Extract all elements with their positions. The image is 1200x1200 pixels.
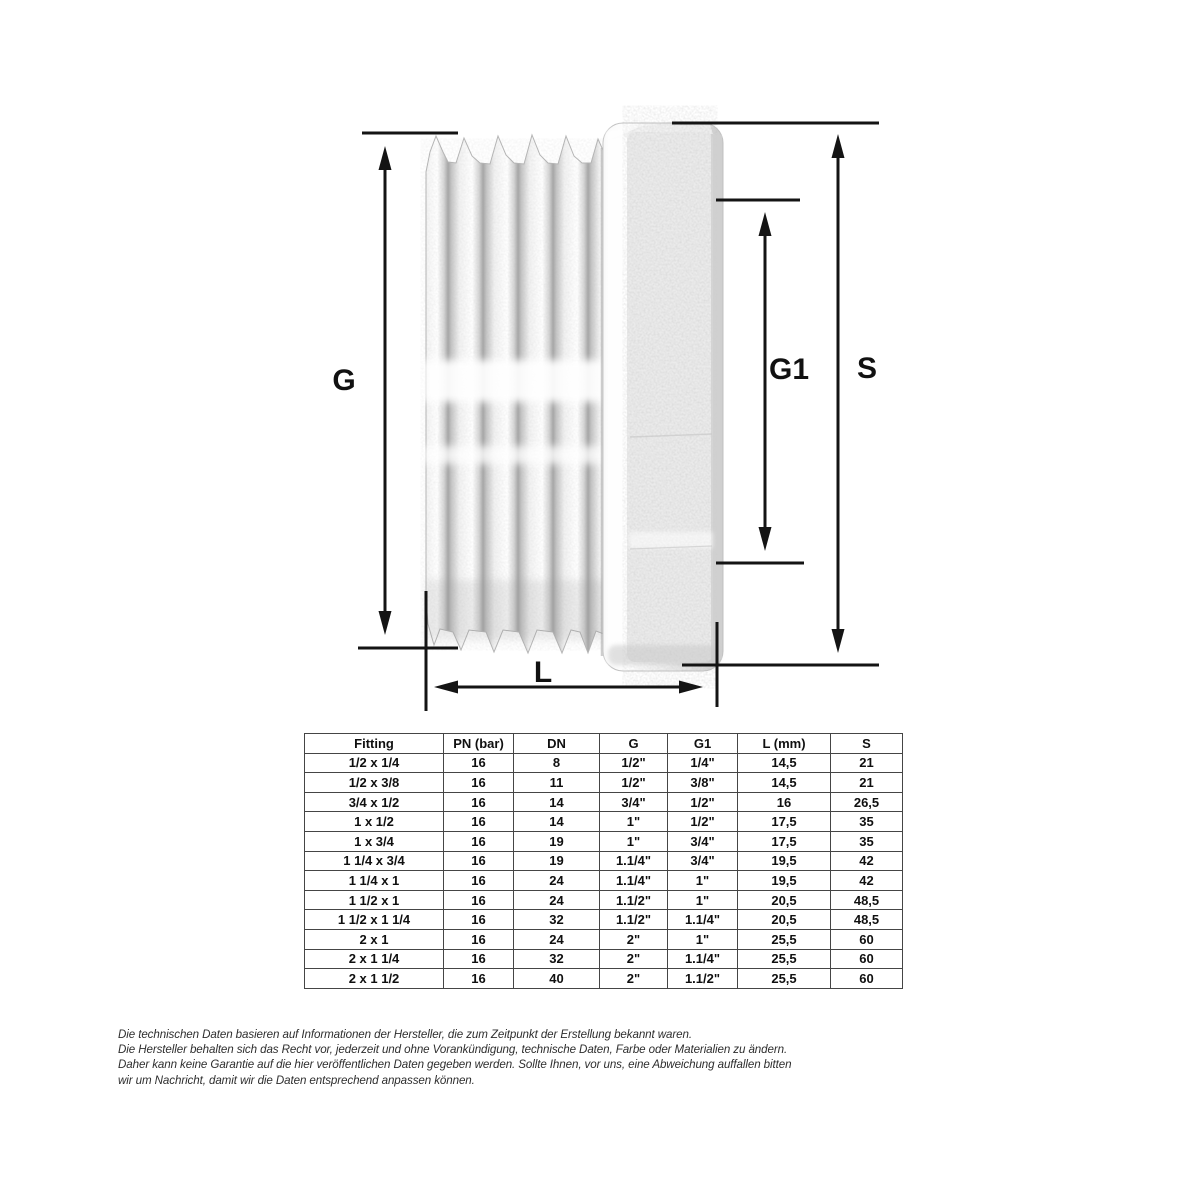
table-cell: 16 — [444, 871, 514, 891]
dimension-label-l: L — [534, 656, 552, 689]
table-cell: 1/2" — [600, 753, 668, 773]
table-cell: 2" — [600, 949, 668, 969]
table-cell: 16 — [444, 949, 514, 969]
table-cell: 16 — [444, 910, 514, 930]
dimension-label-s: S — [857, 352, 877, 385]
table-cell: 16 — [444, 753, 514, 773]
disclaimer: Die technischen Daten basieren auf Infor… — [118, 1027, 791, 1088]
table-header-cell: Fitting — [305, 734, 444, 754]
table-cell: 17,5 — [738, 831, 831, 851]
table-row: 3/4 x 1/216143/4"1/2"1626,5 — [305, 792, 903, 812]
table-cell: 1" — [668, 871, 738, 891]
table-cell: 1" — [668, 890, 738, 910]
table-cell: 1/2" — [668, 792, 738, 812]
table-cell: 1 1/4 x 1 — [305, 871, 444, 891]
table-cell: 60 — [831, 949, 903, 969]
table-cell: 16 — [444, 812, 514, 832]
disclaimer-line: Die technischen Daten basieren auf Infor… — [118, 1027, 791, 1042]
table-row: 1/2 x 3/816111/2"3/8"14,521 — [305, 773, 903, 793]
table-cell: 1 1/4 x 3/4 — [305, 851, 444, 871]
table-cell: 3/4" — [600, 792, 668, 812]
table-cell: 21 — [831, 773, 903, 793]
table-cell: 42 — [831, 851, 903, 871]
table-cell: 14 — [514, 812, 600, 832]
table-cell: 40 — [514, 969, 600, 989]
table-cell: 16 — [444, 890, 514, 910]
table-cell: 1/2" — [600, 773, 668, 793]
table-cell: 1/2 x 1/4 — [305, 753, 444, 773]
table-cell: 8 — [514, 753, 600, 773]
table-header-cell: S — [831, 734, 903, 754]
table-cell: 3/4 x 1/2 — [305, 792, 444, 812]
dimension-label-g: G — [332, 364, 355, 397]
table-cell: 24 — [514, 890, 600, 910]
table-cell: 11 — [514, 773, 600, 793]
table-cell: 16 — [444, 969, 514, 989]
table-cell: 1.1/4" — [600, 851, 668, 871]
table-cell: 1" — [668, 929, 738, 949]
table-row: 1 1/2 x 1 1/416321.1/2"1.1/4"20,548,5 — [305, 910, 903, 930]
table-cell: 2 x 1 1/2 — [305, 969, 444, 989]
table-cell: 3/8" — [668, 773, 738, 793]
table-cell: 32 — [514, 910, 600, 930]
table-cell: 20,5 — [738, 910, 831, 930]
table-cell: 1" — [600, 831, 668, 851]
table-cell: 14,5 — [738, 773, 831, 793]
table-cell: 1 x 3/4 — [305, 831, 444, 851]
disclaimer-line: Die Hersteller behalten sich das Recht v… — [118, 1042, 791, 1057]
disclaimer-line: wir um Nachricht, damit wir die Daten en… — [118, 1073, 791, 1088]
table-cell: 1 1/2 x 1 1/4 — [305, 910, 444, 930]
datasheet-page: G G1 S L — [0, 0, 1200, 1200]
table-cell: 42 — [831, 871, 903, 891]
table-header-cell: L (mm) — [738, 734, 831, 754]
table-cell: 17,5 — [738, 812, 831, 832]
table-cell: 48,5 — [831, 910, 903, 930]
table-cell: 32 — [514, 949, 600, 969]
table-header-cell: G — [600, 734, 668, 754]
table-cell: 1" — [600, 812, 668, 832]
table-cell: 14,5 — [738, 753, 831, 773]
table-cell: 1 x 1/2 — [305, 812, 444, 832]
table-header-row: Fitting PN (bar) DN G G1 L (mm) S — [305, 734, 903, 754]
table-cell: 1 1/2 x 1 — [305, 890, 444, 910]
table-cell: 2" — [600, 929, 668, 949]
table-cell: 1.1/2" — [600, 910, 668, 930]
table-cell: 19 — [514, 851, 600, 871]
table-cell: 25,5 — [738, 929, 831, 949]
table-header-cell: G1 — [668, 734, 738, 754]
table-cell: 35 — [831, 812, 903, 832]
table-cell: 2" — [600, 969, 668, 989]
table-cell: 1.1/4" — [668, 949, 738, 969]
table-cell: 2 x 1 — [305, 929, 444, 949]
table-row: 1 x 1/216141"1/2"17,535 — [305, 812, 903, 832]
table-cell: 21 — [831, 753, 903, 773]
table-cell: 16 — [444, 851, 514, 871]
table-cell: 24 — [514, 929, 600, 949]
table-row: 2 x 116242"1"25,560 — [305, 929, 903, 949]
table-row: 1 1/2 x 116241.1/2"1"20,548,5 — [305, 890, 903, 910]
hex-head — [602, 123, 723, 671]
table-cell: 1/4" — [668, 753, 738, 773]
disclaimer-line: Daher kann keine Garantie auf die hier v… — [118, 1057, 791, 1072]
table-cell: 16 — [444, 831, 514, 851]
technical-drawing: G G1 S L — [0, 0, 1200, 730]
table-cell: 1/2 x 3/8 — [305, 773, 444, 793]
table-cell: 24 — [514, 871, 600, 891]
table-cell: 19,5 — [738, 851, 831, 871]
table-header-cell: PN (bar) — [444, 734, 514, 754]
table-cell: 35 — [831, 831, 903, 851]
table-cell: 1.1/2" — [600, 890, 668, 910]
table-header-cell: DN — [514, 734, 600, 754]
table-cell: 16 — [444, 792, 514, 812]
table-row: 2 x 1 1/416322"1.1/4"25,560 — [305, 949, 903, 969]
table-cell: 1/2" — [668, 812, 738, 832]
table-cell: 19,5 — [738, 871, 831, 891]
table-cell: 25,5 — [738, 969, 831, 989]
table-row: 1 1/4 x 3/416191.1/4"3/4"19,542 — [305, 851, 903, 871]
table-cell: 16 — [444, 929, 514, 949]
table-cell: 16 — [738, 792, 831, 812]
table-row: 2 x 1 1/216402"1.1/2"25,560 — [305, 969, 903, 989]
table-cell: 25,5 — [738, 949, 831, 969]
table-cell: 1.1/4" — [600, 871, 668, 891]
table-cell: 1.1/2" — [668, 969, 738, 989]
table-cell: 3/4" — [668, 851, 738, 871]
table-cell: 16 — [444, 773, 514, 793]
table-row: 1 1/4 x 116241.1/4"1"19,542 — [305, 871, 903, 891]
table-row: 1/2 x 1/41681/2"1/4"14,521 — [305, 753, 903, 773]
table-cell: 20,5 — [738, 890, 831, 910]
table-cell: 60 — [831, 929, 903, 949]
table-cell: 1.1/4" — [668, 910, 738, 930]
dimension-label-g1: G1 — [769, 353, 809, 386]
table-cell: 2 x 1 1/4 — [305, 949, 444, 969]
table-cell: 26,5 — [831, 792, 903, 812]
table-cell: 14 — [514, 792, 600, 812]
table-cell: 48,5 — [831, 890, 903, 910]
table-cell: 19 — [514, 831, 600, 851]
dimensions-table-body: 1/2 x 1/41681/2"1/4"14,5211/2 x 3/816111… — [305, 753, 903, 988]
dimensions-table: Fitting PN (bar) DN G G1 L (mm) S 1/2 x … — [304, 733, 903, 989]
table-row: 1 x 3/416191"3/4"17,535 — [305, 831, 903, 851]
fitting-illustration — [424, 123, 723, 671]
table-cell: 3/4" — [668, 831, 738, 851]
table-cell: 60 — [831, 969, 903, 989]
male-thread — [424, 135, 620, 653]
